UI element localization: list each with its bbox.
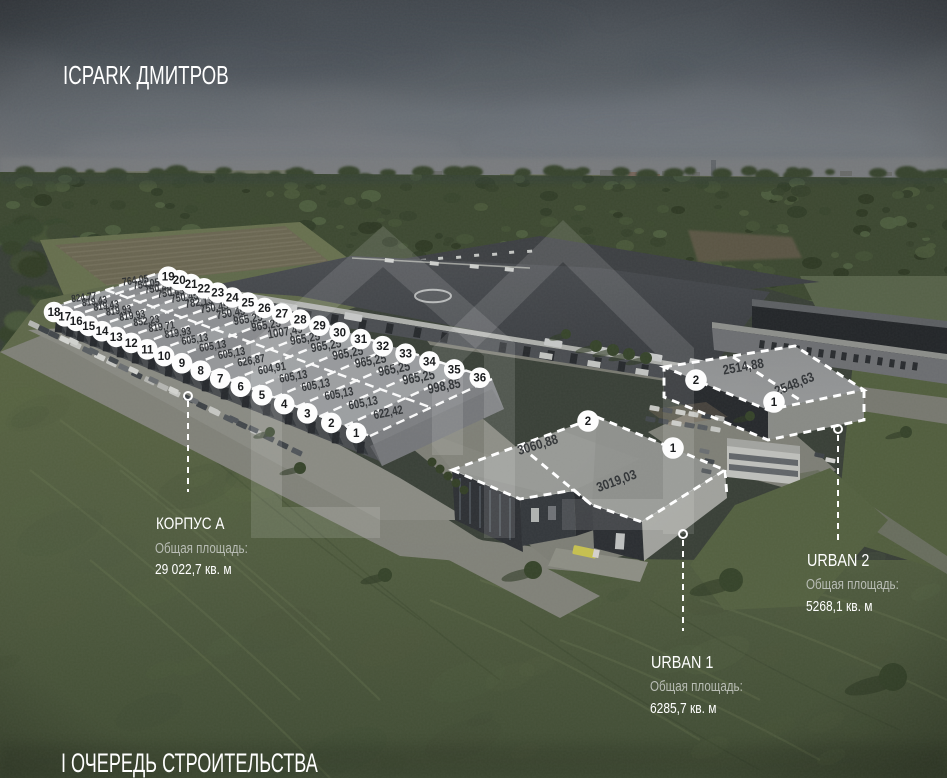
svg-text:36: 36 xyxy=(473,373,486,385)
svg-text:7: 7 xyxy=(217,374,223,386)
svg-text:20: 20 xyxy=(173,275,186,287)
svg-text:22: 22 xyxy=(198,283,211,295)
svg-text:29: 29 xyxy=(313,321,326,333)
svg-text:5268,1 кв. м: 5268,1 кв. м xyxy=(806,598,873,615)
svg-text:2: 2 xyxy=(328,418,334,430)
svg-text:33: 33 xyxy=(399,349,412,361)
svg-text:10: 10 xyxy=(158,351,171,363)
svg-text:ICPARK ДМИТРОВ: ICPARK ДМИТРОВ xyxy=(63,60,229,90)
svg-text:11: 11 xyxy=(141,344,154,356)
svg-text:24: 24 xyxy=(226,293,239,305)
svg-text:URBAN 1: URBAN 1 xyxy=(651,653,713,673)
svg-text:30: 30 xyxy=(333,327,346,339)
svg-text:2: 2 xyxy=(585,416,591,428)
svg-text:21: 21 xyxy=(185,279,198,291)
svg-text:1: 1 xyxy=(771,397,778,409)
svg-text:6: 6 xyxy=(237,382,243,394)
svg-text:26: 26 xyxy=(258,303,271,315)
svg-text:18: 18 xyxy=(48,307,61,319)
svg-text:31: 31 xyxy=(354,334,367,346)
svg-text:1: 1 xyxy=(670,443,677,455)
svg-text:9: 9 xyxy=(179,358,185,370)
svg-text:5: 5 xyxy=(259,390,266,402)
svg-text:28: 28 xyxy=(294,315,307,327)
svg-text:27: 27 xyxy=(275,309,288,321)
svg-text:Общая площадь:: Общая площадь: xyxy=(155,540,248,557)
svg-text:3: 3 xyxy=(304,408,310,420)
svg-text:I ОЧЕРЕДЬ СТРОИТЕЛЬСТВА: I ОЧЕРЕДЬ СТРОИТЕЛЬСТВА xyxy=(61,747,318,778)
svg-text:34: 34 xyxy=(423,356,436,368)
svg-text:32: 32 xyxy=(376,341,389,353)
svg-text:Общая площадь:: Общая площадь: xyxy=(650,678,743,695)
svg-text:23: 23 xyxy=(211,288,224,300)
svg-text:4: 4 xyxy=(281,399,288,411)
svg-text:14: 14 xyxy=(96,326,109,338)
svg-text:12: 12 xyxy=(125,338,138,350)
svg-text:25: 25 xyxy=(242,298,255,310)
svg-text:16: 16 xyxy=(70,316,83,328)
svg-text:6285,7 кв. м: 6285,7 кв. м xyxy=(650,700,717,717)
svg-text:1: 1 xyxy=(353,428,360,440)
svg-text:35: 35 xyxy=(448,364,461,376)
svg-text:29 022,7 кв. м: 29 022,7 кв. м xyxy=(155,561,232,578)
svg-text:2: 2 xyxy=(693,375,699,387)
svg-text:8: 8 xyxy=(197,366,204,378)
svg-text:КОРПУС А: КОРПУС А xyxy=(156,515,225,534)
svg-text:13: 13 xyxy=(110,332,123,344)
svg-text:Общая площадь:: Общая площадь: xyxy=(806,576,899,593)
svg-text:15: 15 xyxy=(82,321,95,333)
svg-text:URBAN 2: URBAN 2 xyxy=(807,551,869,571)
